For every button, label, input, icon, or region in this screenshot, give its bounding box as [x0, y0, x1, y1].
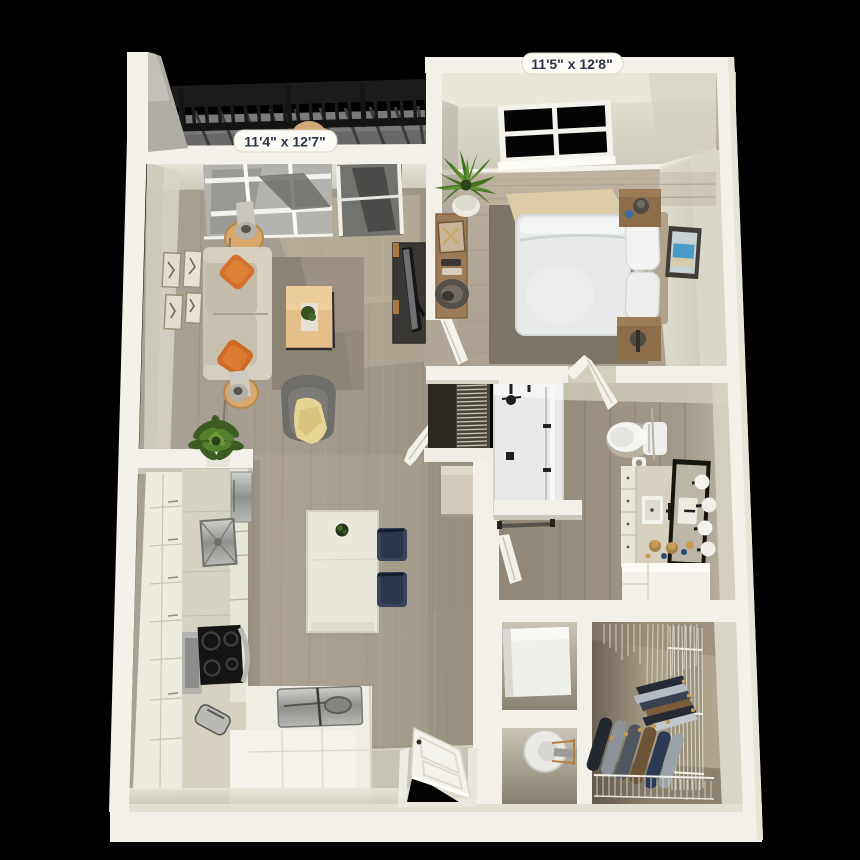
- svg-text:11'4" x 12'7": 11'4" x 12'7": [244, 134, 325, 150]
- svg-text:11'5" x 12'8": 11'5" x 12'8": [531, 56, 612, 72]
